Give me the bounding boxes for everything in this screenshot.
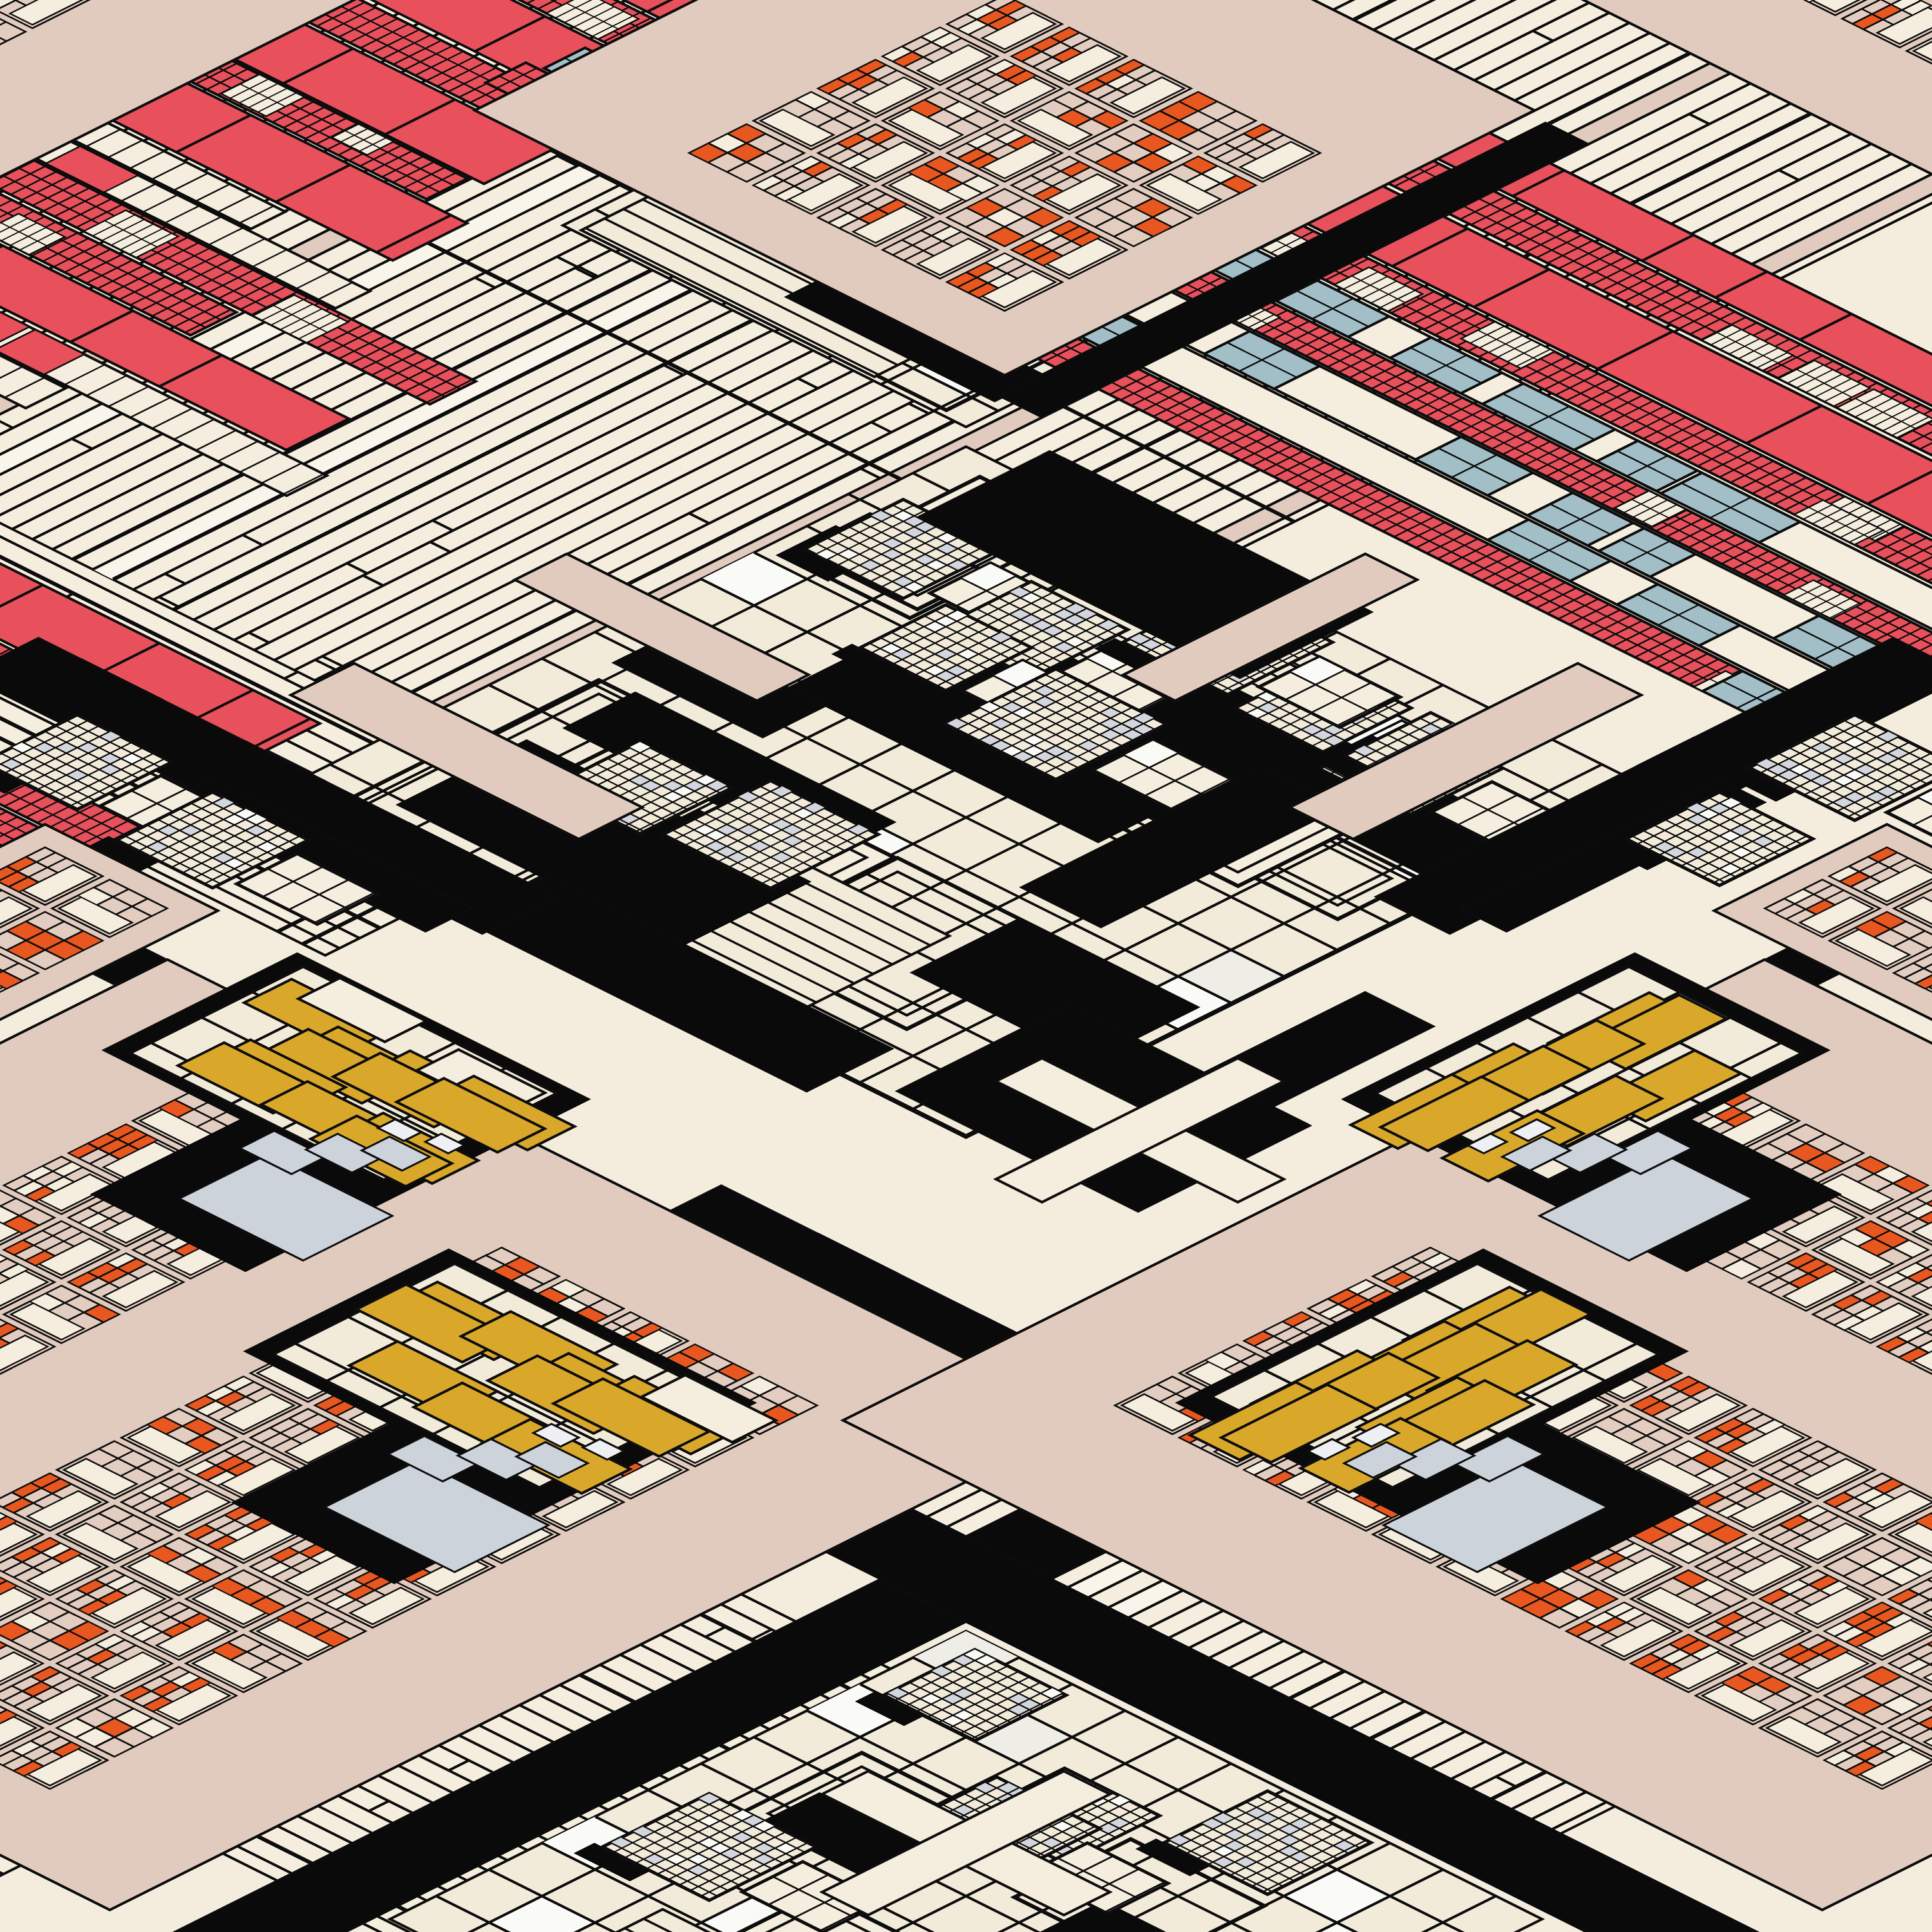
artwork-stage <box>0 0 1932 1932</box>
generative-isometric-city-artwork <box>0 0 1932 1932</box>
isometric-pattern-canvas <box>0 0 1932 1932</box>
